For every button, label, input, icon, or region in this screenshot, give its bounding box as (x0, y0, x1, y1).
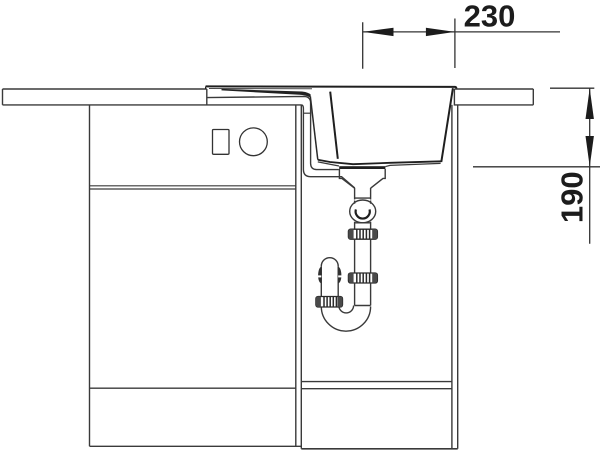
svg-text:230: 230 (464, 0, 516, 33)
svg-text:190: 190 (554, 171, 589, 223)
